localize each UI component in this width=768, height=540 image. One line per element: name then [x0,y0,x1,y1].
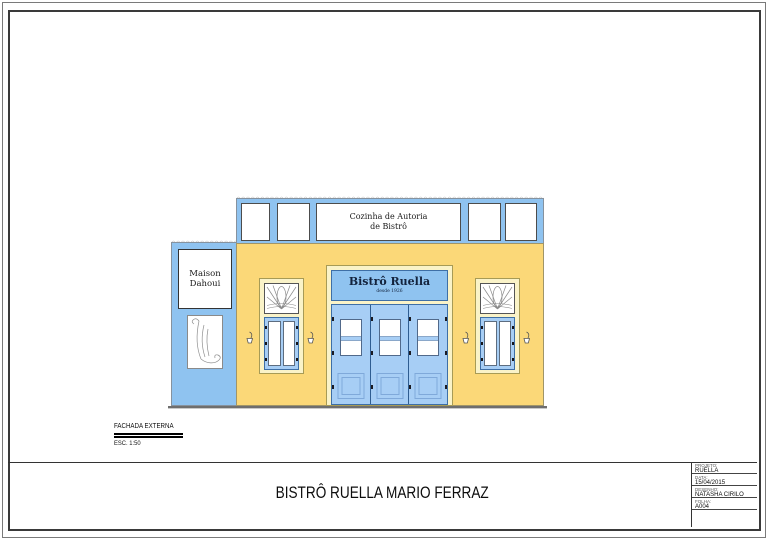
sconce-icon [245,331,254,345]
title-band-divider [8,462,757,463]
view-label-underline [114,436,183,438]
maison-sign-line2: Dahoui [190,279,221,289]
ground-line [168,406,547,409]
door-panel [376,373,403,399]
transom-left [264,283,299,314]
field-value: A004 [695,504,757,510]
window-pane [283,321,296,366]
sconce-icon [306,331,315,345]
entrance-assembly: Bistrô Ruella desde 1926 [326,265,453,406]
door-panel [415,373,442,399]
awning-panel-4 [468,203,501,241]
transom-right [480,283,515,314]
title-block-row-data: DATA: 15/04/2015 [692,474,757,486]
awning-band: Cozinha de Autoria de Bistrô [236,198,544,244]
title-block-row-folha: FOLHA: A004 [692,498,757,510]
floral-ornament-icon [188,316,222,368]
door-center [370,305,409,404]
drawing-sheet: Maison Dahoui Cozinha de Autoria de Bist… [0,0,768,540]
fan-ornament-icon [265,284,298,313]
window-pane [484,321,497,366]
door-panel [337,373,364,399]
window-pane [268,321,281,366]
door-window [379,319,401,356]
window-pane [499,321,512,366]
poster-window [187,315,223,369]
window-left-lower [264,317,299,370]
main-sign-subtitle: desde 1926 [376,289,402,295]
awning-sign: Cozinha de Autoria de Bistrô [316,203,461,241]
awning-sign-line1: Cozinha de Autoria [350,212,428,223]
title-block: PROJETO: RUELLA DATA: 15/04/2015 DESENHO… [691,462,757,527]
awning-panel-2 [277,203,310,241]
window-right [475,278,520,374]
left-shop-section: Maison Dahoui [171,242,237,406]
sconce-icon [461,331,470,345]
fan-ornament-icon [481,284,514,313]
bistro-ruella-sign: Bistrô Ruella desde 1926 [331,270,448,301]
window-right-lower [480,317,515,370]
main-sign-name: Bistrô Ruella [349,276,430,288]
awning-panel-1 [241,203,270,241]
title-block-row-desenho: DESENHO: NATASHA CIRILO [692,486,757,498]
view-label-underline [114,433,183,435]
sconce-icon [522,331,531,345]
title-block-row-projeto: PROJETO: RUELLA [692,462,757,474]
sheet-title: BISTRÔ RUELLA MARIO FERRAZ [8,483,757,503]
awning-panel-5 [505,203,537,241]
maison-sign-line1: Maison [189,269,220,279]
door-window [340,319,362,356]
door-right [408,305,447,404]
window-left [259,278,304,374]
maison-dahoui-sign: Maison Dahoui [178,249,232,309]
door-window [417,319,439,356]
awning-sign-line2: de Bistrô [370,222,407,233]
door-left [332,305,370,404]
view-scale: ESC. 1:50 [114,440,141,447]
entrance-doors [331,304,448,405]
view-label: FACHADA EXTERNA [114,423,174,430]
